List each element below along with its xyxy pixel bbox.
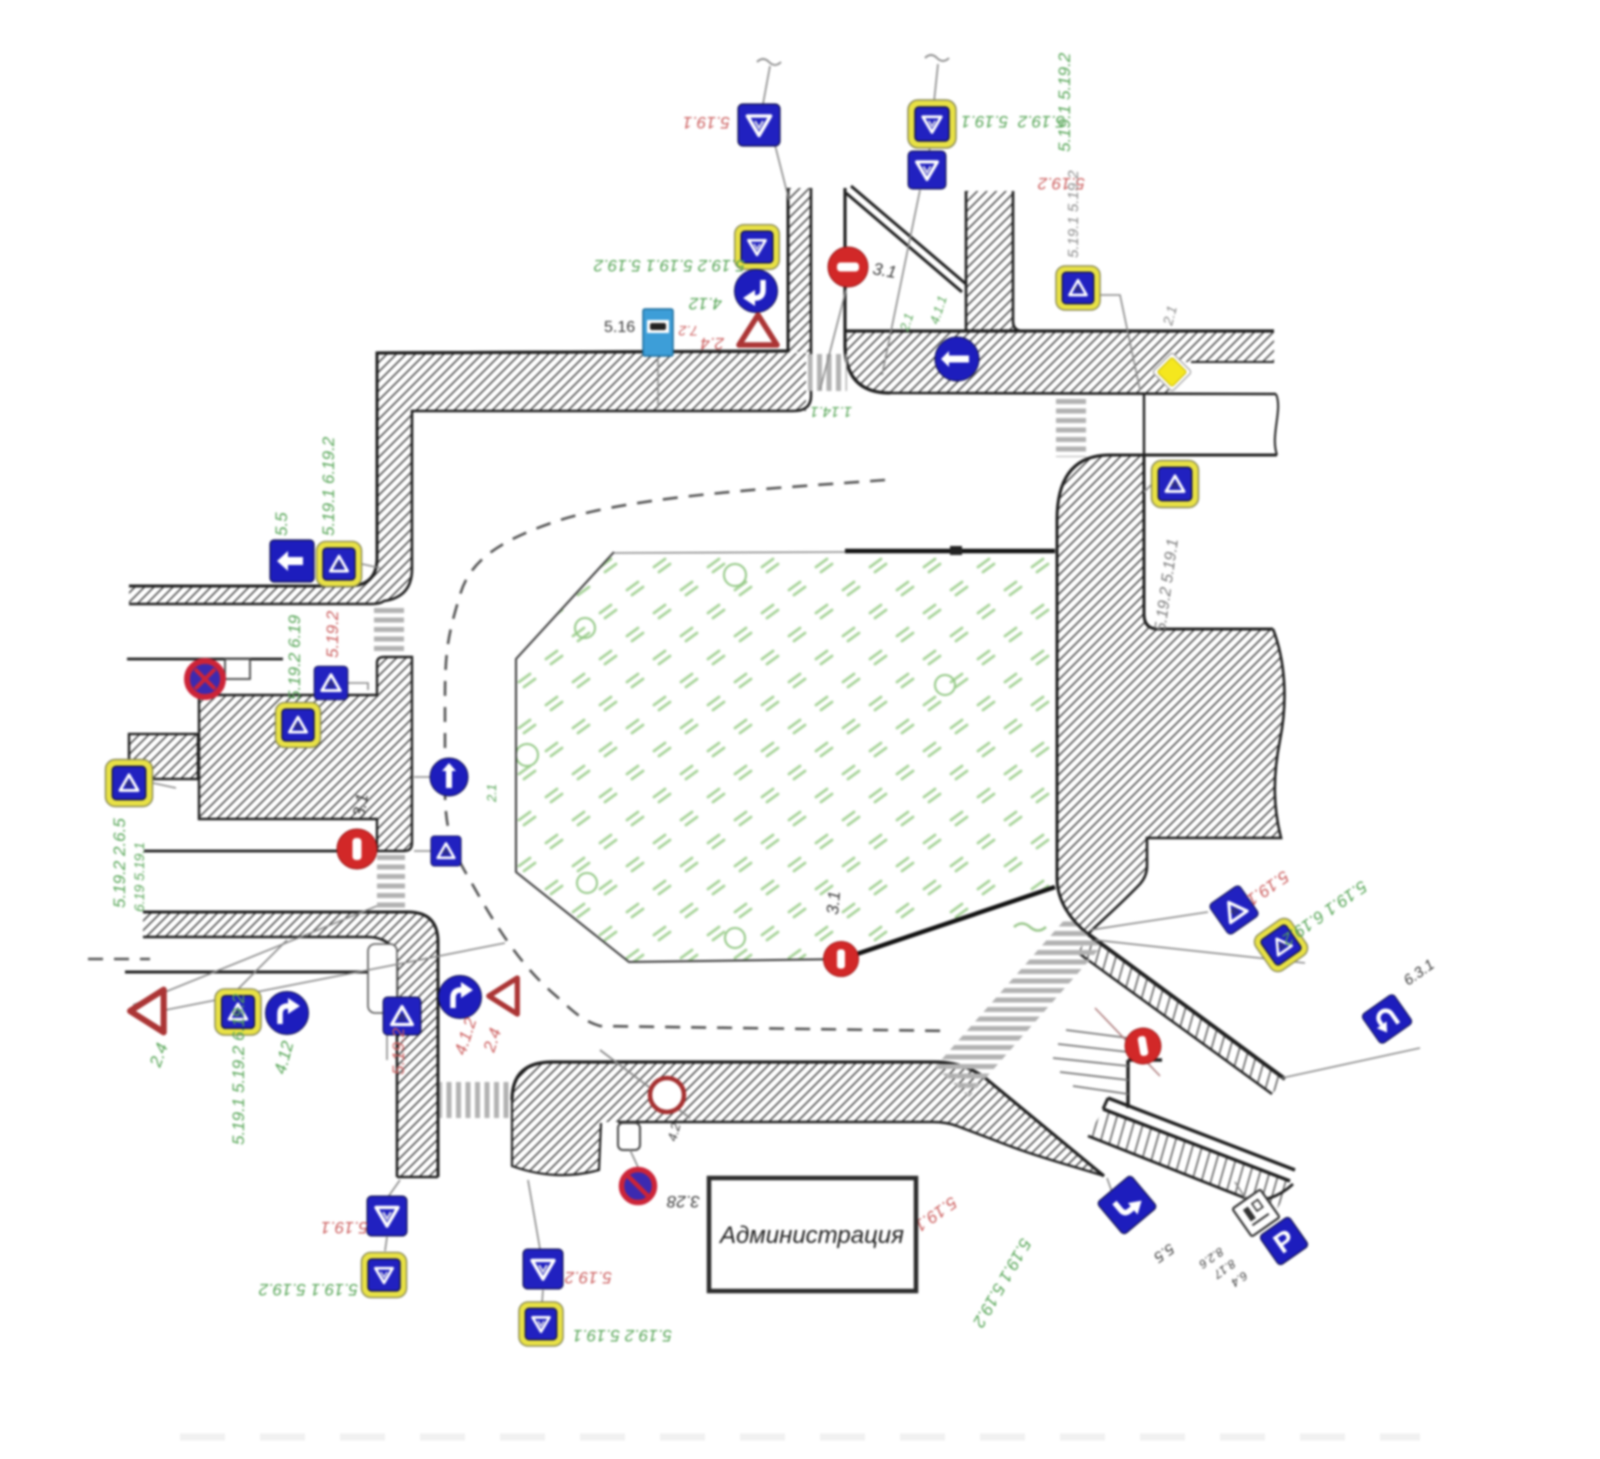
- svg-text:5.19.2 6.19: 5.19.2 6.19: [285, 614, 304, 700]
- svg-text:6.3.1: 6.3.1: [1401, 956, 1438, 989]
- svg-text:4.12: 4.12: [271, 1039, 298, 1076]
- svg-text:5.19.1: 5.19.1: [683, 113, 730, 132]
- svg-text:5.19.2 5.19.1: 5.19.2 5.19.1: [573, 1326, 672, 1345]
- svg-text:5.19.2 5.19.1 5.19.2: 5.19.2 5.19.1 5.19.2: [593, 256, 745, 275]
- svg-text:5.19.1 6.19.2: 5.19.1 6.19.2: [1278, 877, 1371, 950]
- svg-text:5.19.1 5.19.2: 5.19.1 5.19.2: [258, 1280, 358, 1299]
- svg-text:4.2: 4.2: [664, 1121, 683, 1143]
- svg-text:5.19.1: 5.19.1: [321, 1218, 368, 1237]
- svg-text:5.16: 5.16: [604, 319, 635, 336]
- svg-text:5.5: 5.5: [1150, 1240, 1177, 1266]
- svg-text:5.19.1 6.19.2: 5.19.1 6.19.2: [319, 436, 338, 536]
- svg-text:4.1.1: 4.1.1: [927, 294, 950, 326]
- svg-text:5.19.1: 5.19.1: [911, 1193, 961, 1236]
- svg-text:7.2: 7.2: [678, 323, 698, 339]
- svg-text:2.1: 2.1: [484, 784, 499, 803]
- svg-text:5.19.1: 5.19.1: [1243, 867, 1293, 910]
- svg-text:Администрация: Администрация: [718, 1222, 904, 1249]
- svg-text:5.19.2: 5.19.2: [564, 1268, 612, 1287]
- svg-text:5.19.2: 5.19.2: [323, 610, 342, 658]
- svg-text:4.12: 4.12: [688, 294, 722, 313]
- svg-text:3.28: 3.28: [666, 1192, 700, 1211]
- svg-text:4.1.2: 4.1.2: [451, 1015, 481, 1057]
- svg-text:5.5: 5.5: [272, 512, 291, 536]
- svg-text:2.1: 2.1: [1159, 304, 1180, 328]
- svg-text:3.1: 3.1: [349, 792, 372, 819]
- svg-text:3.1: 3.1: [871, 259, 898, 282]
- svg-text:5.19.1 5.19.2: 5.19.1 5.19.2: [969, 1235, 1035, 1331]
- svg-text:5.19.2 2.6.5: 5.19.2 2.6.5: [110, 818, 129, 908]
- svg-text:5.19.2 5.19.1: 5.19.2 5.19.1: [961, 112, 1065, 131]
- svg-text:2.4: 2.4: [146, 1041, 172, 1071]
- svg-text:5.19.2 5.19.1: 5.19.2 5.19.1: [1152, 538, 1182, 633]
- svg-text:2.4: 2.4: [479, 1026, 505, 1055]
- svg-text:6.19 5.19.1: 6.19 5.19.1: [131, 842, 147, 912]
- svg-text:1.14.1: 1.14.1: [810, 403, 852, 420]
- svg-text:5.19.2: 5.19.2: [389, 1027, 408, 1075]
- svg-text:5.19.1 5.19.2: 5.19.1 5.19.2: [1055, 52, 1074, 152]
- svg-text:3.1: 3.1: [823, 890, 844, 915]
- svg-text:5.19.1 5.19.2: 5.19.1 5.19.2: [1065, 170, 1082, 258]
- svg-text:5.19.1 5.19.2 6.19.2: 5.19.1 5.19.2 6.19.2: [229, 993, 248, 1145]
